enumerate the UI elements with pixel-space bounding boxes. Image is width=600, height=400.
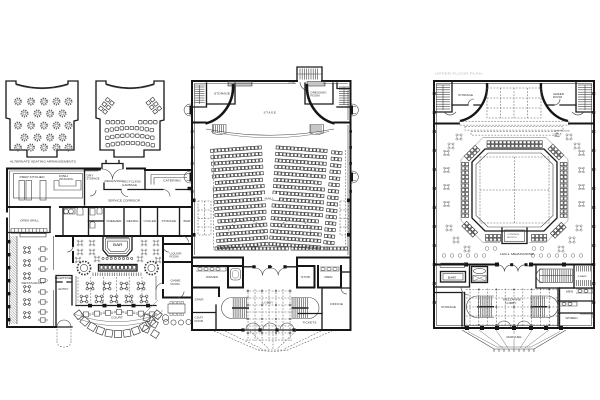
svg-text:STAIR: STAIR (578, 275, 588, 278)
svg-text:ALTERNATE SEATING ARRANGEMENTS: ALTERNATE SEATING ARRANGEMENTS (10, 160, 76, 164)
svg-text:ROOM: ROOM (553, 96, 562, 99)
svg-text:STAGE: STAGE (264, 110, 277, 114)
svg-text:BAR: BAR (113, 243, 123, 247)
svg-text:REFRIG: REFRIG (127, 219, 139, 223)
svg-text:STORAGE: STORAGE (441, 306, 456, 309)
svg-text:BAR: BAR (184, 219, 191, 223)
svg-text:OFFICE: OFFICE (330, 302, 343, 306)
svg-text:COURT: COURT (111, 316, 123, 320)
svg-text:LOBBY: LOBBY (506, 302, 517, 305)
svg-text:ROOM: ROOM (311, 95, 320, 98)
svg-text:STORAGE: STORAGE (87, 178, 100, 181)
svg-text:ROOM: ROOM (170, 255, 179, 259)
svg-text:ENTRY: ENTRY (59, 287, 69, 291)
svg-text:CATERING: CATERING (163, 178, 182, 182)
svg-text:BAR: BAR (448, 276, 456, 280)
svg-text:STORAGE: STORAGE (458, 93, 473, 97)
svg-text:CONTINUOUS: CONTINUOUS (554, 131, 571, 133)
svg-text:MEN: MEN (566, 291, 573, 294)
svg-text:TRAY: TRAY (554, 135, 562, 138)
svg-text:STORAGE: STORAGE (214, 92, 230, 96)
svg-text:OPEN GRILL: OPEN GRILL (20, 219, 39, 223)
svg-text:WASHING: WASHING (59, 177, 73, 181)
svg-text:WOMEN: WOMEN (206, 276, 218, 279)
svg-text:2 HR: 2 HR (288, 82, 296, 84)
svg-text:PREP KITCHEN: PREP KITCHEN (20, 175, 45, 179)
svg-text:TELEPHONE: TELEPHONE (55, 277, 72, 280)
svg-text:UPPER FLOOR PLAN: UPPER FLOOR PLAN (435, 72, 482, 76)
svg-text:RECEIVING: RECEIVING (105, 180, 123, 183)
svg-text:MEN: MEN (325, 276, 333, 279)
svg-text:MARQUEE: MARQUEE (507, 336, 522, 339)
svg-text:CONTROL: CONTROL (508, 234, 521, 236)
svg-text:SERVICE CORRIDOR: SERVICE CORRIDOR (108, 198, 141, 202)
svg-text:STOR: STOR (301, 276, 310, 279)
svg-text:ROOM: ROOM (195, 320, 204, 323)
svg-text:STORAGE: STORAGE (162, 219, 177, 223)
svg-text:ROOM: ROOM (171, 282, 180, 286)
svg-text:CABLE: CABLE (554, 132, 563, 135)
svg-text:RESTAURANT: RESTAURANT (22, 281, 45, 285)
svg-text:HALL MEZZANINE: HALL MEZZANINE (500, 252, 534, 256)
svg-text:GARBAGE: GARBAGE (122, 184, 137, 187)
svg-text:BOOTH: BOOTH (508, 237, 517, 239)
svg-text:WOMEN: WOMEN (566, 317, 578, 320)
svg-text:COOLER: COOLER (144, 219, 157, 223)
svg-text:FREEZER: FREEZER (107, 219, 122, 223)
svg-text:LOBBY: LOBBY (263, 300, 274, 304)
svg-text:STAIR: STAIR (195, 299, 204, 302)
svg-text:TICKETS: TICKETS (303, 320, 317, 324)
svg-text:HALL: HALL (265, 196, 275, 200)
